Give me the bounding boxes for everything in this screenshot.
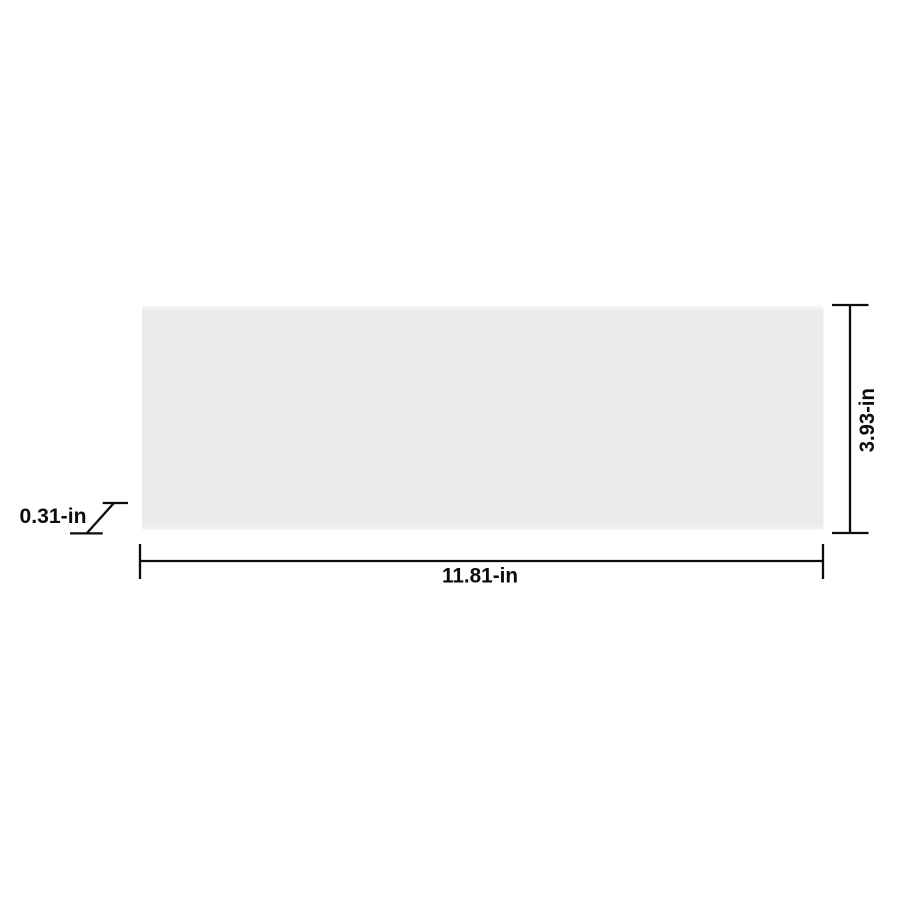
svg-text:3.93-in: 3.93-in (855, 388, 879, 452)
svg-text:11.81-in: 11.81-in (442, 564, 518, 588)
svg-text:0.31-in: 0.31-in (20, 504, 87, 528)
